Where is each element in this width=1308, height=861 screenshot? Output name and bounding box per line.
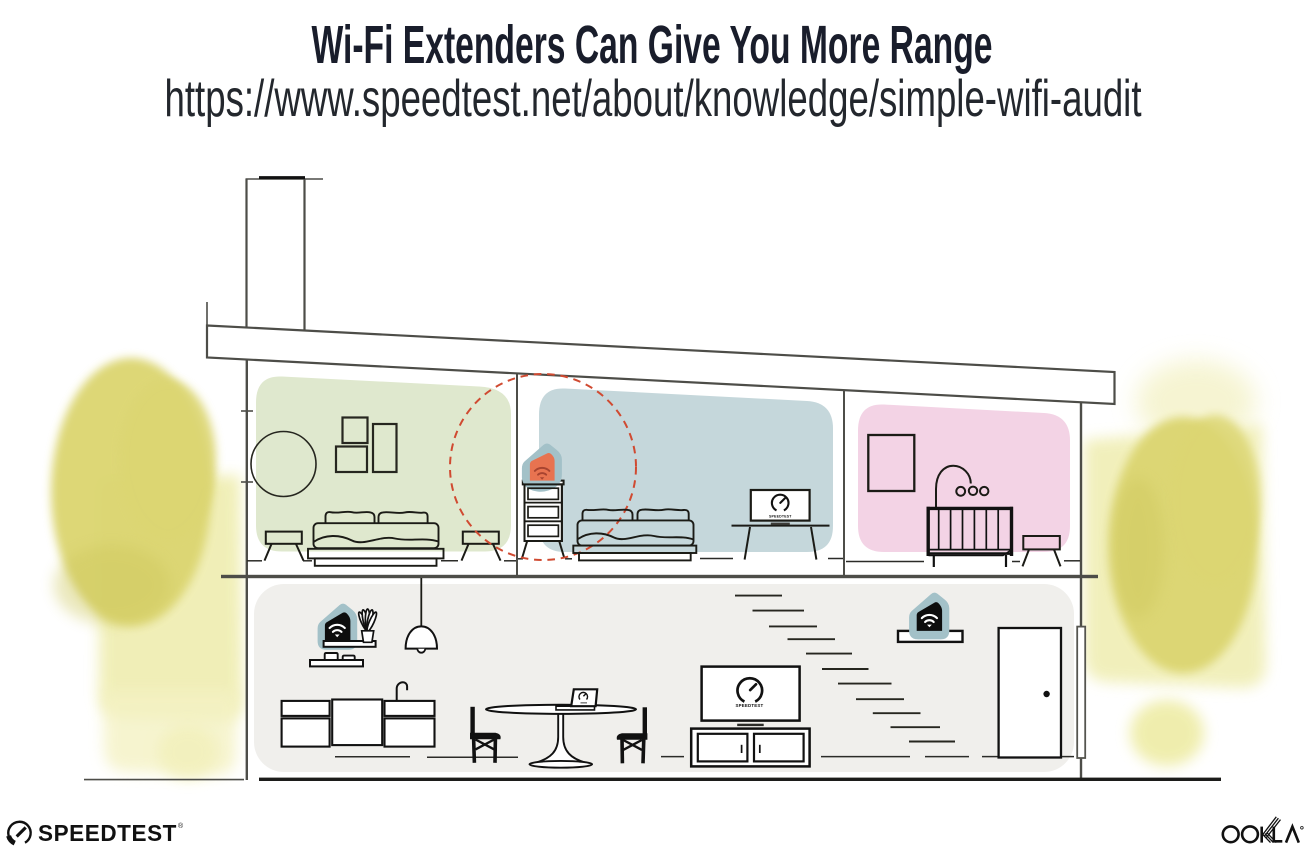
svg-text:®: ® [178,822,184,830]
svg-text:SPEEDTEST: SPEEDTEST [735,703,763,708]
svg-text:https://www.speedtest.net/abou: https://www.speedtest.net/about/knowledg… [165,70,1142,128]
svg-text:Wi-Fi Extenders Can Give You M: Wi-Fi Extenders Can Give You More Range [312,15,993,75]
svg-text:SPEEDTEST: SPEEDTEST [38,820,177,846]
svg-text:SPEEDTEST: SPEEDTEST [769,514,792,518]
